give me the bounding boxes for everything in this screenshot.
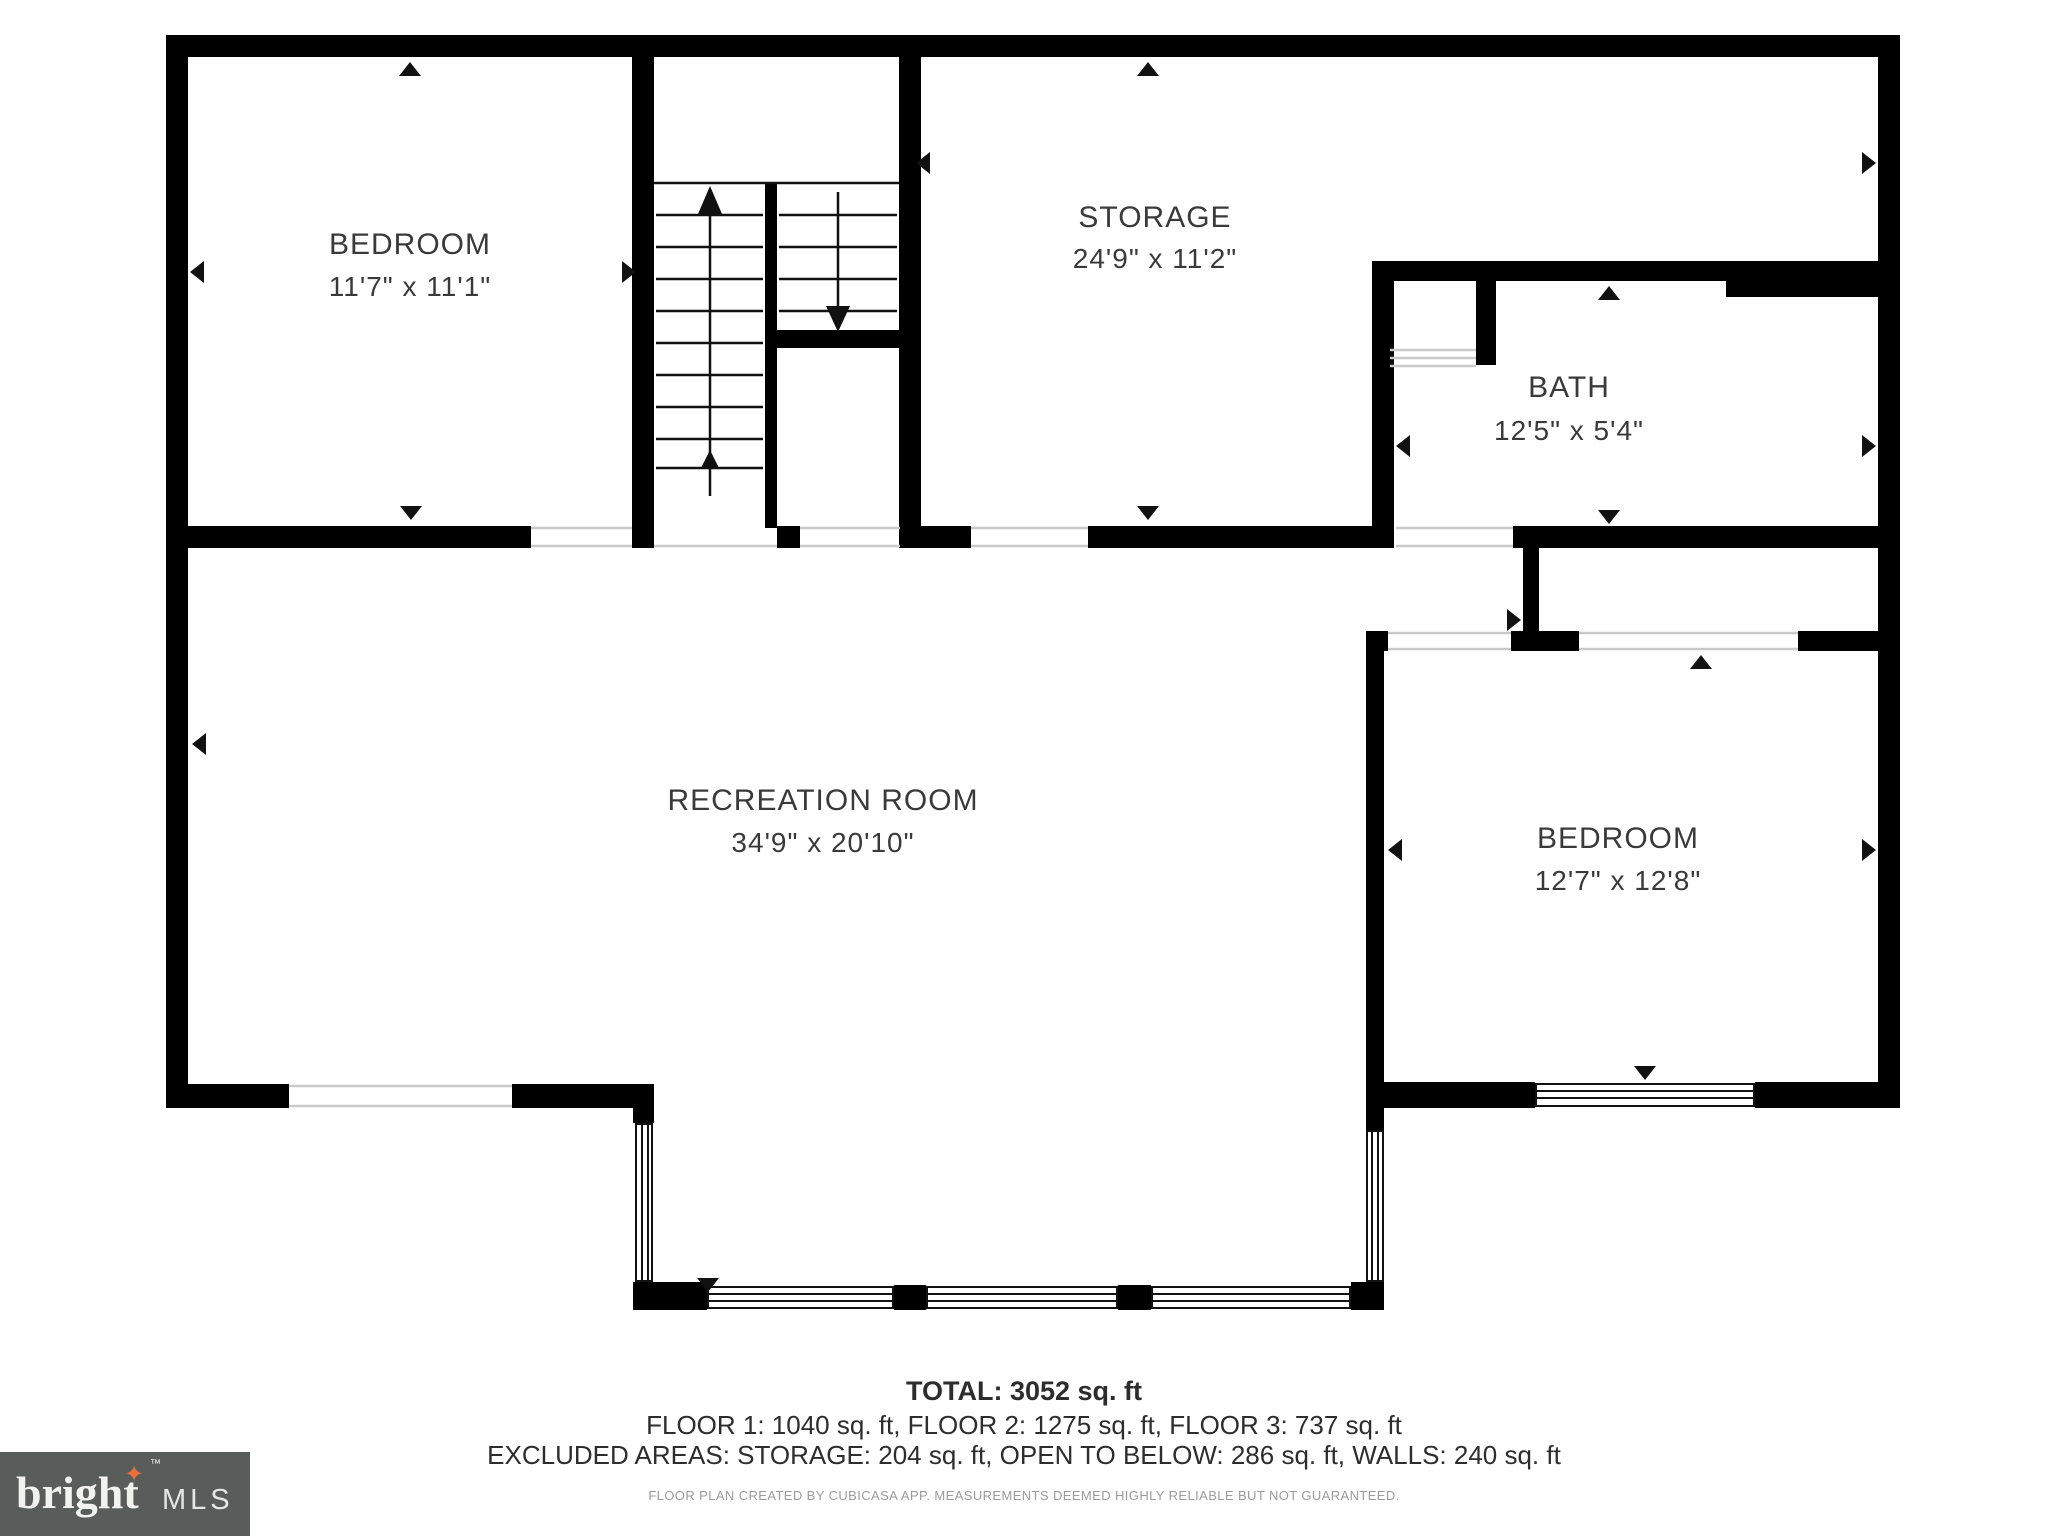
window — [1151, 1285, 1351, 1310]
arrow-right-icon — [1862, 435, 1876, 457]
arrow-up-icon — [1598, 286, 1620, 300]
room-label-bedroom-1: BEDROOM 11'7" x 11'1" — [329, 228, 491, 302]
room-dimensions: 24'9" x 11'2" — [1073, 243, 1237, 274]
arrow-left-icon — [1388, 839, 1402, 861]
arrow-down-icon — [1598, 510, 1620, 524]
floor-areas-text: FLOOR 1: 1040 sq. ft, FLOOR 2: 1275 sq. … — [0, 1410, 2048, 1441]
floor-plan-page: { "plan": { "rooms": [ {"name": "BEDROOM… — [0, 0, 2048, 1536]
window — [1535, 1082, 1755, 1108]
arrow-up-icon — [1690, 655, 1712, 669]
floor-plan-svg: BEDROOM 11'7" x 11'1" STORAGE 24'9" x 11… — [0, 0, 2048, 1536]
excluded-areas-text: EXCLUDED AREAS: STORAGE: 204 sq. ft, OPE… — [0, 1440, 2048, 1471]
room-dimensions: 34'9" x 20'10" — [731, 827, 914, 858]
arrow-down-icon — [1137, 506, 1159, 520]
room-dimensions: 12'5" x 5'4" — [1494, 415, 1644, 446]
room-dimensions: 11'7" x 11'1" — [329, 271, 491, 302]
trademark-symbol: ™ — [150, 1458, 161, 1470]
arrow-up-icon — [399, 62, 421, 76]
window — [707, 1285, 894, 1310]
room-name: RECREATION ROOM — [667, 784, 978, 817]
room-label-recreation-room: RECREATION ROOM 34'9" x 20'10" — [667, 784, 978, 858]
room-name: STORAGE — [1078, 201, 1231, 234]
walls — [166, 35, 1900, 1310]
arrow-right-icon — [1862, 839, 1876, 861]
stairs-down-arrow — [826, 192, 850, 332]
arrow-down-icon — [400, 506, 422, 520]
arrow-left-icon — [1396, 435, 1410, 457]
room-label-bath: BATH 12'5" x 5'4" — [1494, 371, 1644, 446]
floor-plan: BEDROOM 11'7" x 11'1" STORAGE 24'9" x 11… — [0, 0, 2048, 1536]
room-label-bedroom-2: BEDROOM 12'7" x 12'8" — [1535, 822, 1702, 896]
arrow-up-icon — [1137, 62, 1159, 76]
windows — [634, 1082, 1755, 1310]
bright-mls-logo: bright ✦ ™ MLS — [0, 1452, 250, 1536]
room-name: BEDROOM — [1537, 822, 1699, 855]
window — [926, 1285, 1118, 1310]
arrow-down-icon — [1634, 1066, 1656, 1080]
room-label-storage: STORAGE 24'9" x 11'2" — [1073, 201, 1237, 274]
logo-brand-text: bright — [16, 1466, 139, 1519]
window — [1366, 1130, 1384, 1282]
arrow-right-icon — [1507, 609, 1521, 631]
arrow-right-icon — [1862, 152, 1876, 174]
star-icon: ✦ — [124, 1460, 144, 1488]
door-openings — [289, 350, 1798, 1106]
room-name: BATH — [1528, 371, 1610, 404]
arrow-left-icon — [190, 261, 204, 283]
window — [634, 1123, 654, 1282]
stairs-up-arrow — [698, 186, 722, 496]
arrow-left-icon — [192, 733, 206, 755]
room-dimensions: 12'7" x 12'8" — [1535, 865, 1702, 896]
room-name: BEDROOM — [329, 228, 491, 261]
total-area-text: TOTAL: 3052 sq. ft — [0, 1376, 2048, 1407]
logo-suffix-text: MLS — [162, 1484, 234, 1517]
disclaimer-text: FLOOR PLAN CREATED BY CUBICASA APP. MEAS… — [0, 1488, 2048, 1503]
